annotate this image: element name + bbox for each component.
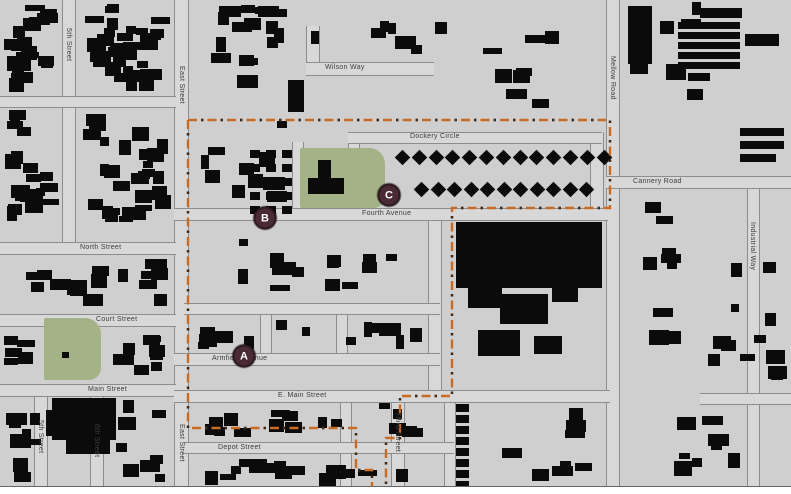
map-canvas: Wilson WayDockery CircleCannery RoadFour… xyxy=(0,0,791,494)
map-marker-a: A xyxy=(233,345,256,368)
markers-layer: ABC xyxy=(0,0,791,494)
map-marker-c: C xyxy=(378,184,401,207)
bottom-margin xyxy=(0,486,791,494)
map-marker-b: B xyxy=(254,207,277,230)
